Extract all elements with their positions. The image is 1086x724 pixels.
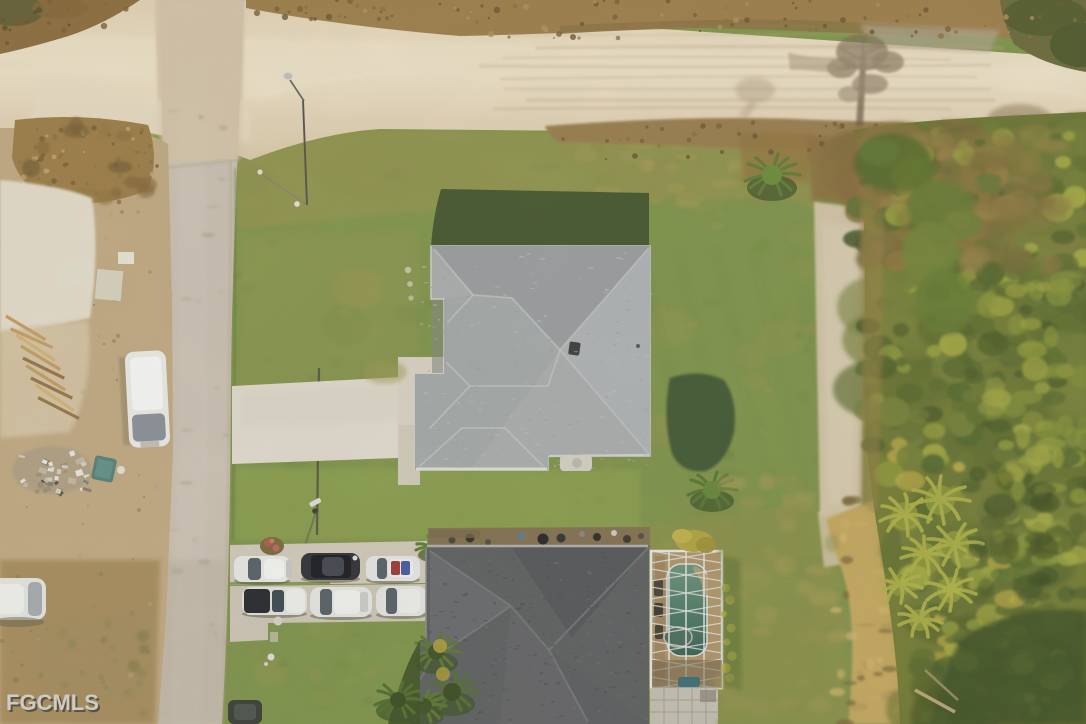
svg-text:FGCMLS: FGCMLS <box>6 690 99 715</box>
